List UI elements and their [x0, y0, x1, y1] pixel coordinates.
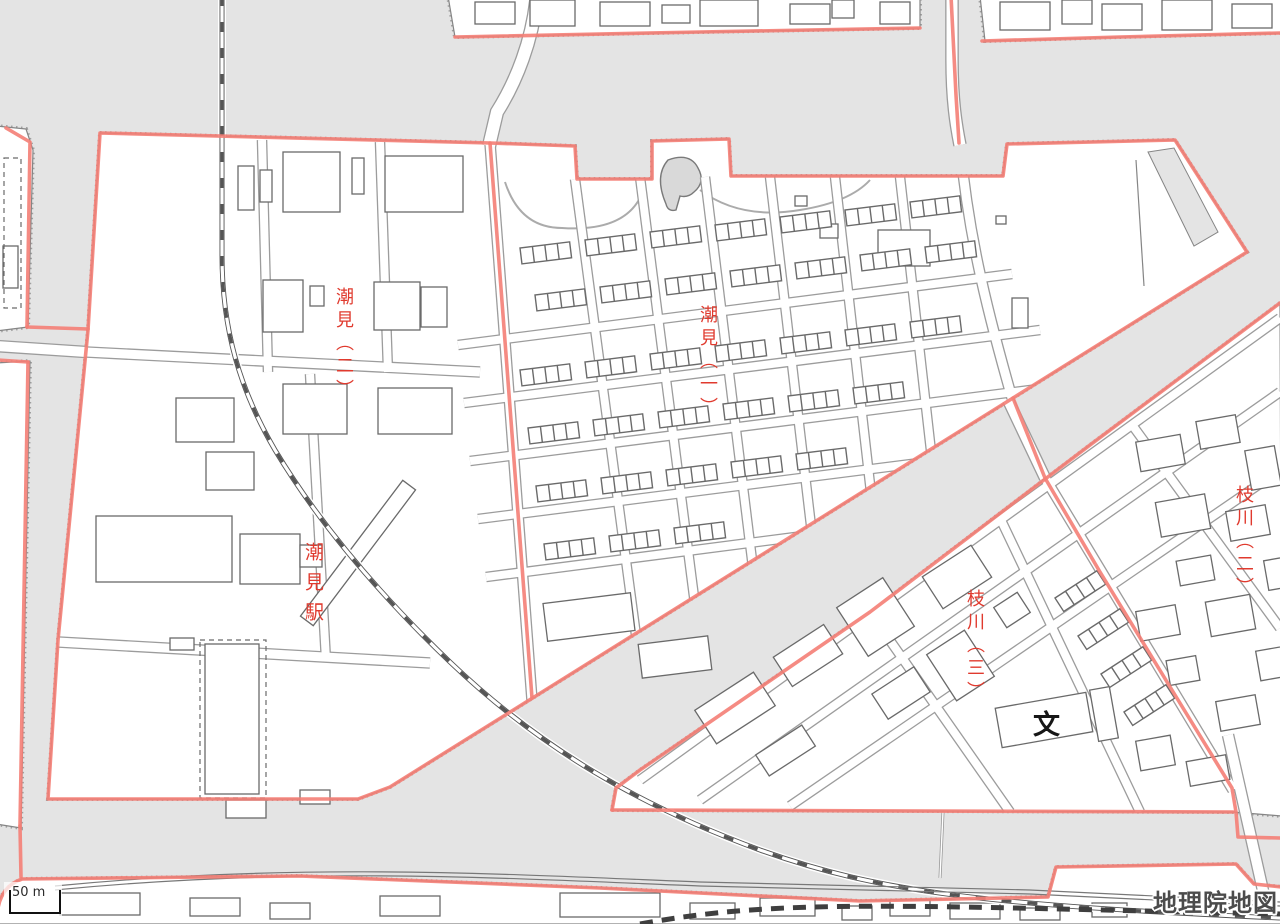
district-label-shiomi-2: 潮見（二）	[334, 287, 352, 402]
attribution-watermark[interactable]: 地理院地図	[1153, 890, 1278, 916]
school-icon: 文	[1033, 712, 1060, 739]
district-label-edagawa-3: 枝川（三）	[965, 589, 983, 704]
station-label-shiomi: 潮見駅	[303, 542, 322, 632]
scale-bar: 50 m	[4, 882, 62, 916]
map-tiles	[0, 0, 1280, 924]
district-label-edagawa-2: 枝川（二）	[1234, 485, 1252, 600]
scale-bar-bracket	[9, 890, 61, 914]
map-canvas[interactable]: 潮見（二） 潮見（一） 潮見駅 枝川（三） 枝川（二） 文 50 m 地理院地図	[0, 0, 1280, 924]
district-label-shiomi-1: 潮見（一）	[698, 305, 716, 420]
